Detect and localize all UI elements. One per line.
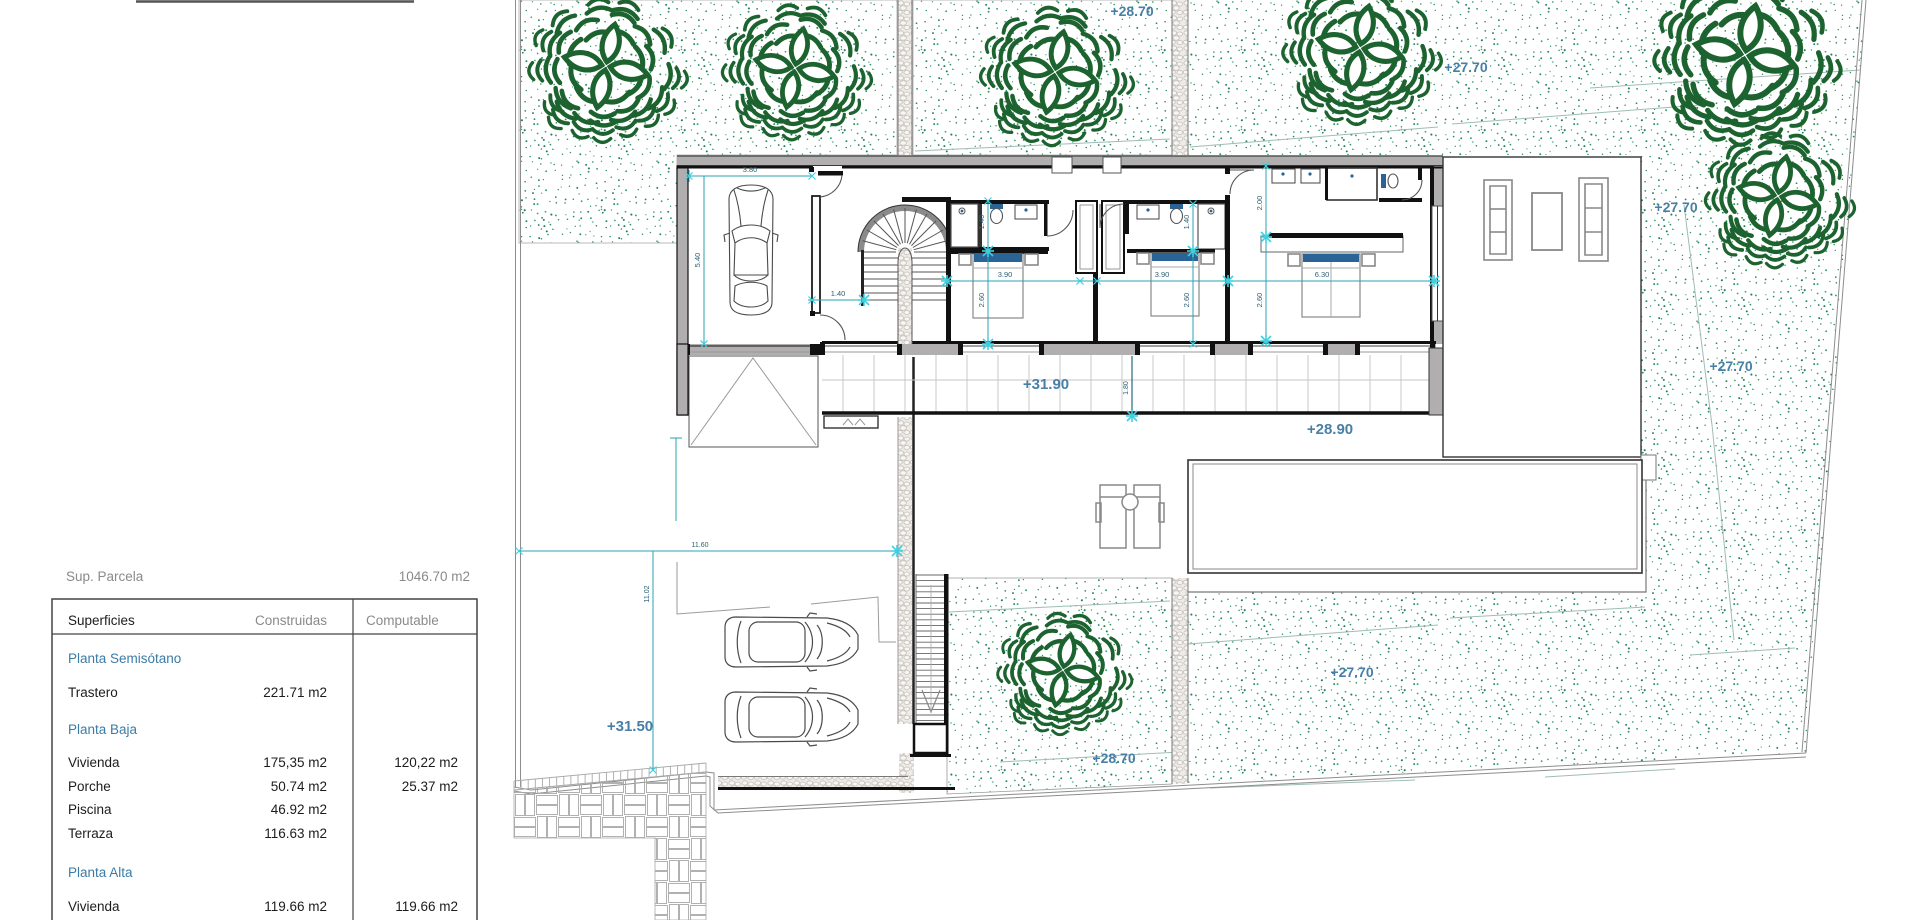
svg-text:+27.70: +27.70 — [1330, 664, 1373, 680]
svg-text:1046.70 m2: 1046.70 m2 — [399, 569, 470, 584]
svg-text:221.71 m2: 221.71 m2 — [263, 685, 327, 700]
svg-text:Sup. Parcela: Sup. Parcela — [66, 569, 144, 584]
svg-text:Piscina: Piscina — [68, 802, 112, 817]
svg-text:25.37 m2: 25.37 m2 — [402, 779, 458, 794]
svg-text:1.40: 1.40 — [1182, 215, 1191, 230]
svg-text:1.80: 1.80 — [1123, 381, 1130, 395]
svg-text:120,22 m2: 120,22 m2 — [394, 755, 458, 770]
svg-text:Computable: Computable — [366, 613, 439, 628]
svg-text:Terraza: Terraza — [68, 826, 114, 841]
svg-text:2.00: 2.00 — [1255, 196, 1264, 211]
svg-text:+31.90: +31.90 — [1023, 376, 1069, 393]
svg-text:2.60: 2.60 — [1182, 293, 1191, 308]
svg-text:Planta Baja: Planta Baja — [68, 722, 138, 737]
svg-text:2.60: 2.60 — [1255, 293, 1264, 308]
svg-text:119.66 m2: 119.66 m2 — [264, 899, 327, 914]
svg-text:+28.90: +28.90 — [1307, 421, 1353, 438]
svg-text:Trastero: Trastero — [68, 685, 118, 700]
svg-text:175,35 m2: 175,35 m2 — [263, 755, 327, 770]
svg-text:Vivienda: Vivienda — [68, 755, 120, 770]
svg-text:2.60: 2.60 — [977, 293, 986, 308]
svg-text:Planta Semisótano: Planta Semisótano — [68, 651, 181, 666]
svg-text:Vivienda: Vivienda — [68, 899, 120, 914]
svg-text:+31.50: +31.50 — [607, 718, 653, 735]
svg-text:+27.70: +27.70 — [1654, 199, 1697, 215]
svg-text:+28.70: +28.70 — [1092, 750, 1135, 766]
svg-text:+27.70: +27.70 — [1709, 358, 1752, 374]
svg-text:116.63 m2: 116.63 m2 — [264, 826, 327, 841]
svg-text:Planta Alta: Planta Alta — [68, 865, 133, 880]
svg-text:3.80: 3.80 — [743, 165, 758, 174]
svg-text:11.02: 11.02 — [644, 585, 651, 602]
svg-text:50.74 m2: 50.74 m2 — [271, 779, 327, 794]
svg-text:3.90: 3.90 — [998, 270, 1013, 279]
svg-text:46.92 m2: 46.92 m2 — [271, 802, 327, 817]
svg-text:Construidas: Construidas — [255, 613, 327, 628]
svg-text:+27.70: +27.70 — [1444, 59, 1487, 75]
svg-text:119.66 m2: 119.66 m2 — [395, 899, 458, 914]
svg-text:3.90: 3.90 — [1155, 270, 1170, 279]
svg-text:6.30: 6.30 — [1315, 270, 1330, 279]
svg-text:Porche: Porche — [68, 779, 111, 794]
svg-text:1.40: 1.40 — [831, 289, 846, 298]
svg-text:11.60: 11.60 — [692, 542, 709, 549]
svg-text:+28.70: +28.70 — [1110, 3, 1153, 19]
svg-text:Superficies: Superficies — [68, 613, 135, 628]
svg-text:1.40: 1.40 — [977, 215, 986, 230]
svg-text:5.40: 5.40 — [693, 253, 702, 268]
